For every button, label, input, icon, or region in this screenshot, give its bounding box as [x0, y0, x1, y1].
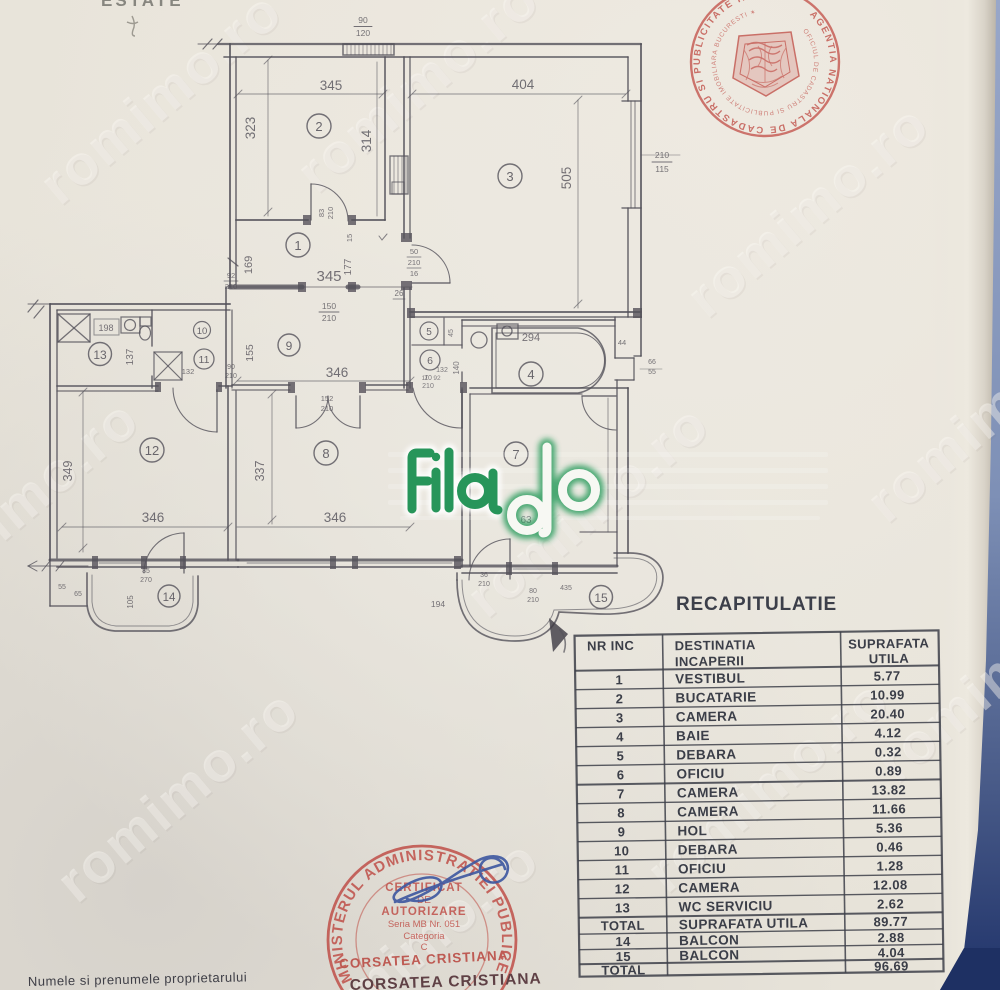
svg-text:346: 346 — [142, 510, 165, 525]
svg-text:1: 1 — [294, 238, 301, 253]
svg-text:TOTAL: TOTAL — [601, 962, 645, 978]
svg-text:13.82: 13.82 — [871, 782, 906, 798]
svg-text:210: 210 — [422, 383, 434, 390]
svg-text:346: 346 — [326, 365, 349, 380]
svg-text:DEBARA: DEBARA — [676, 747, 736, 763]
svg-text:26: 26 — [395, 289, 404, 298]
svg-text:210: 210 — [408, 258, 421, 267]
svg-text:9: 9 — [286, 339, 293, 353]
svg-text:346: 346 — [324, 510, 347, 525]
svg-text:105: 105 — [126, 595, 135, 609]
svg-text:ESTATE: ESTATE — [101, 0, 184, 10]
svg-text:20.40: 20.40 — [870, 706, 905, 722]
svg-text:92: 92 — [433, 375, 441, 382]
svg-text:5: 5 — [426, 327, 432, 338]
svg-text:132: 132 — [182, 367, 195, 376]
svg-text:55: 55 — [648, 369, 656, 376]
svg-text:11: 11 — [615, 862, 630, 877]
svg-text:0.46: 0.46 — [876, 839, 903, 854]
svg-text:4.12: 4.12 — [874, 725, 901, 740]
svg-text:11.66: 11.66 — [872, 801, 906, 817]
svg-text:4: 4 — [616, 729, 624, 744]
svg-text:CAMERA: CAMERA — [678, 880, 740, 896]
svg-text:115: 115 — [655, 164, 669, 174]
svg-text:66: 66 — [648, 359, 656, 366]
svg-text:90: 90 — [227, 364, 235, 371]
svg-text:12: 12 — [615, 881, 630, 896]
svg-text:6: 6 — [427, 355, 433, 367]
svg-text:8: 8 — [617, 805, 625, 820]
svg-text:3: 3 — [506, 169, 513, 184]
svg-text:337: 337 — [253, 461, 267, 482]
svg-text:7: 7 — [617, 786, 625, 801]
svg-text:1: 1 — [615, 672, 623, 687]
svg-text:INCAPERII: INCAPERII — [675, 653, 745, 669]
svg-text:96.69: 96.69 — [874, 958, 909, 974]
svg-text:UTILA: UTILA — [869, 651, 910, 667]
svg-text:155: 155 — [244, 344, 256, 362]
svg-text:BAIE: BAIE — [676, 728, 710, 744]
svg-text:505: 505 — [559, 167, 574, 190]
svg-text:13: 13 — [93, 348, 107, 362]
svg-text:TOTAL: TOTAL — [601, 918, 645, 934]
svg-text:5.77: 5.77 — [874, 668, 901, 683]
svg-text:345: 345 — [316, 268, 341, 285]
svg-text:120: 120 — [356, 28, 370, 38]
svg-text:194: 194 — [431, 599, 445, 609]
svg-text:15: 15 — [345, 234, 354, 242]
svg-text:2.88: 2.88 — [877, 930, 904, 945]
svg-text:WC SERVICIU: WC SERVICIU — [678, 898, 772, 914]
svg-text:210: 210 — [321, 404, 334, 413]
svg-text:14: 14 — [615, 934, 631, 949]
svg-text:BALCON: BALCON — [679, 947, 739, 963]
svg-text:3: 3 — [616, 710, 624, 725]
svg-text:RECAPITULATIE: RECAPITULATIE — [676, 594, 837, 615]
svg-text:2: 2 — [315, 119, 322, 134]
svg-text:152: 152 — [321, 394, 334, 403]
svg-text:13: 13 — [615, 900, 630, 915]
svg-text:2: 2 — [616, 691, 624, 706]
svg-text:85: 85 — [142, 568, 150, 575]
svg-text:OFICIU: OFICIU — [676, 766, 724, 782]
svg-text:Seria MB Nr. 051: Seria MB Nr. 051 — [388, 919, 460, 930]
svg-text:5.36: 5.36 — [876, 820, 903, 835]
svg-text:12.08: 12.08 — [873, 877, 908, 893]
svg-text:2.62: 2.62 — [877, 896, 904, 911]
svg-text:90: 90 — [358, 15, 368, 25]
svg-text:CAMERA: CAMERA — [676, 709, 738, 725]
svg-text:132: 132 — [436, 367, 448, 374]
svg-text:AUTORIZARE: AUTORIZARE — [381, 906, 466, 918]
svg-text:1.28: 1.28 — [876, 858, 903, 873]
svg-text:Categoria: Categoria — [403, 931, 445, 942]
svg-text:210: 210 — [225, 373, 237, 380]
svg-text:36: 36 — [480, 572, 488, 579]
svg-text:83: 83 — [317, 209, 326, 217]
svg-text:80: 80 — [529, 588, 537, 595]
svg-text:OFICIU: OFICIU — [678, 861, 726, 877]
svg-text:16: 16 — [410, 269, 418, 278]
svg-text:345: 345 — [320, 78, 343, 93]
svg-text:5: 5 — [616, 748, 624, 763]
svg-text:10: 10 — [197, 326, 208, 337]
svg-text:270: 270 — [140, 577, 152, 584]
svg-text:0.32: 0.32 — [875, 744, 902, 759]
svg-text:10: 10 — [614, 843, 629, 858]
svg-text:10.99: 10.99 — [870, 687, 905, 703]
svg-text:4: 4 — [527, 367, 534, 382]
svg-text:323: 323 — [243, 117, 258, 140]
svg-text:210: 210 — [322, 313, 336, 323]
svg-text:11: 11 — [199, 354, 210, 366]
svg-text:CAMERA: CAMERA — [677, 785, 739, 801]
svg-text:140: 140 — [452, 361, 461, 375]
svg-text:169: 169 — [243, 256, 255, 274]
svg-text:137: 137 — [125, 348, 136, 365]
svg-text:314: 314 — [359, 129, 374, 152]
svg-text:150: 150 — [322, 301, 336, 311]
svg-text:177: 177 — [343, 258, 354, 275]
svg-text:VESTIBUL: VESTIBUL — [675, 671, 745, 687]
svg-text:9: 9 — [618, 824, 626, 839]
svg-text:6: 6 — [617, 767, 625, 782]
svg-text:BUCATARIE: BUCATARIE — [675, 689, 756, 705]
svg-text:210: 210 — [326, 207, 335, 220]
svg-text:210: 210 — [478, 581, 490, 588]
svg-text:BALCON: BALCON — [679, 932, 739, 948]
svg-text:294: 294 — [522, 332, 540, 344]
svg-text:SUPRAFATA UTILA: SUPRAFATA UTILA — [679, 915, 809, 932]
svg-text:15: 15 — [594, 591, 608, 605]
svg-text:404: 404 — [512, 77, 535, 92]
svg-text:HOL: HOL — [677, 823, 707, 838]
svg-text:70: 70 — [424, 375, 432, 382]
svg-text:CAMERA: CAMERA — [677, 804, 739, 820]
svg-text:92: 92 — [227, 271, 235, 280]
svg-text:45: 45 — [448, 329, 455, 337]
svg-text:8: 8 — [322, 446, 329, 461]
svg-text:0.89: 0.89 — [875, 763, 902, 778]
svg-text:NR INC: NR INC — [587, 638, 635, 654]
svg-text:DESTINATIA: DESTINATIA — [675, 637, 756, 653]
svg-text:210: 210 — [527, 597, 539, 604]
svg-text:50: 50 — [410, 247, 418, 256]
svg-text:44: 44 — [618, 338, 626, 347]
svg-text:65: 65 — [74, 591, 82, 598]
svg-text:435: 435 — [560, 585, 572, 592]
svg-text:SUPRAFATA: SUPRAFATA — [848, 635, 930, 651]
svg-text:12: 12 — [145, 443, 159, 458]
svg-text:14: 14 — [163, 592, 176, 604]
svg-text:349: 349 — [61, 461, 75, 482]
svg-text:89.77: 89.77 — [873, 914, 908, 930]
svg-text:55: 55 — [58, 584, 66, 591]
svg-text:DEBARA: DEBARA — [678, 842, 738, 858]
svg-text:198: 198 — [98, 323, 113, 333]
